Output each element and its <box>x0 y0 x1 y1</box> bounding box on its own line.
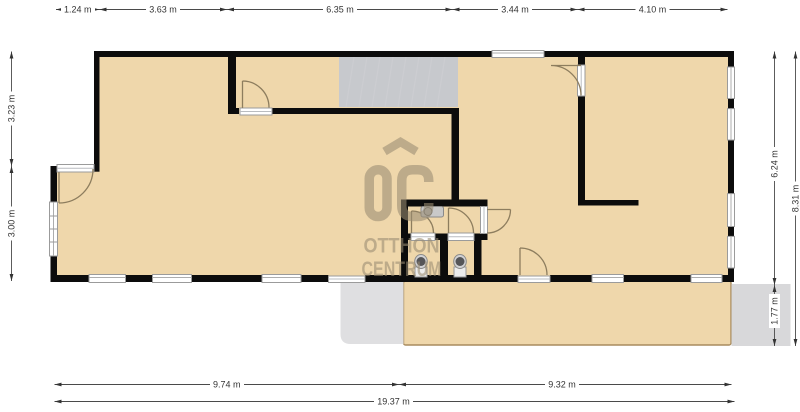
svg-text:9.74 m: 9.74 m <box>213 380 241 390</box>
svg-text:4.10 m: 4.10 m <box>639 5 667 15</box>
svg-text:6.35 m: 6.35 m <box>326 5 354 15</box>
svg-text:1.77 m: 1.77 m <box>770 297 780 325</box>
svg-text:CENTRUM: CENTRUM <box>362 257 442 281</box>
svg-text:19.37 m: 19.37 m <box>377 397 410 407</box>
svg-text:8.31 m: 8.31 m <box>791 185 800 213</box>
svg-text:3.63 m: 3.63 m <box>149 5 177 15</box>
svg-text:6.24 m: 6.24 m <box>770 150 780 178</box>
svg-text:3.00 m: 3.00 m <box>7 210 17 238</box>
svg-text:3.23 m: 3.23 m <box>7 95 17 123</box>
svg-text:OTTHON: OTTHON <box>364 233 440 257</box>
svg-text:9.32 m: 9.32 m <box>548 380 576 390</box>
svg-text:3.44 m: 3.44 m <box>501 5 529 15</box>
svg-text:1.24 m: 1.24 m <box>64 5 92 15</box>
